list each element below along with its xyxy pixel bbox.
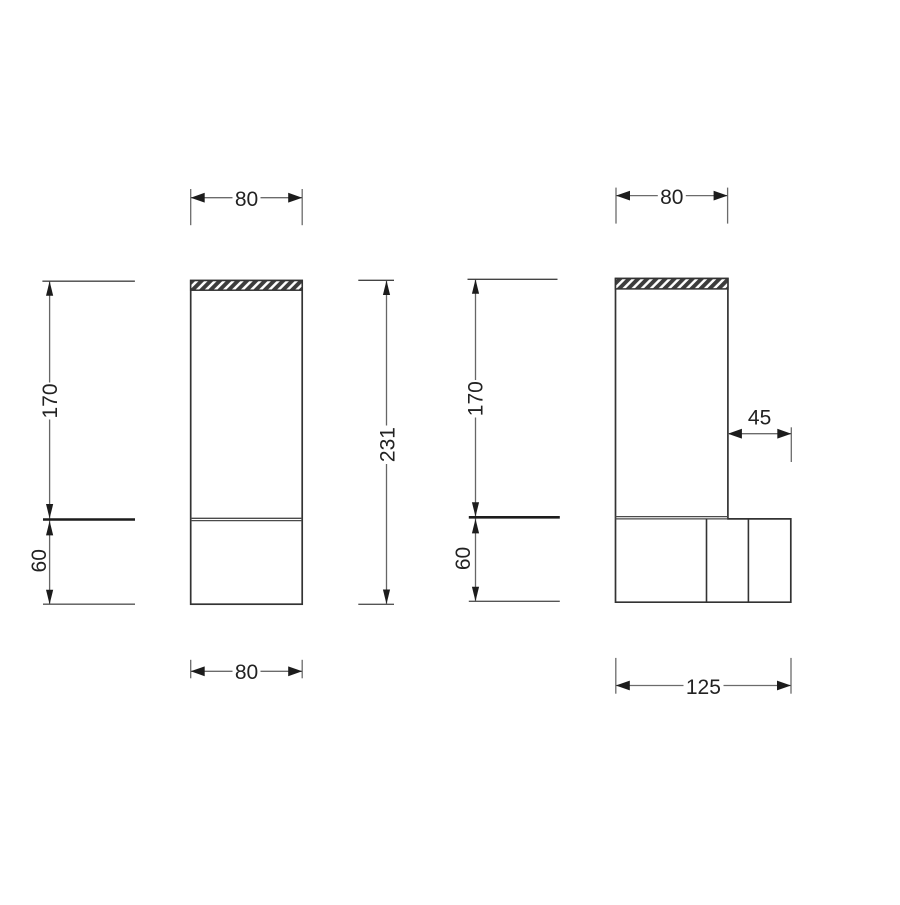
- svg-text:60: 60: [28, 549, 51, 572]
- svg-text:80: 80: [235, 661, 258, 684]
- svg-text:80: 80: [660, 186, 683, 209]
- svg-text:231: 231: [377, 427, 400, 462]
- svg-text:45: 45: [748, 406, 771, 429]
- svg-text:125: 125: [686, 676, 721, 699]
- svg-text:170: 170: [465, 381, 488, 416]
- svg-text:170: 170: [39, 383, 62, 418]
- svg-text:60: 60: [452, 547, 475, 570]
- svg-text:80: 80: [235, 188, 258, 211]
